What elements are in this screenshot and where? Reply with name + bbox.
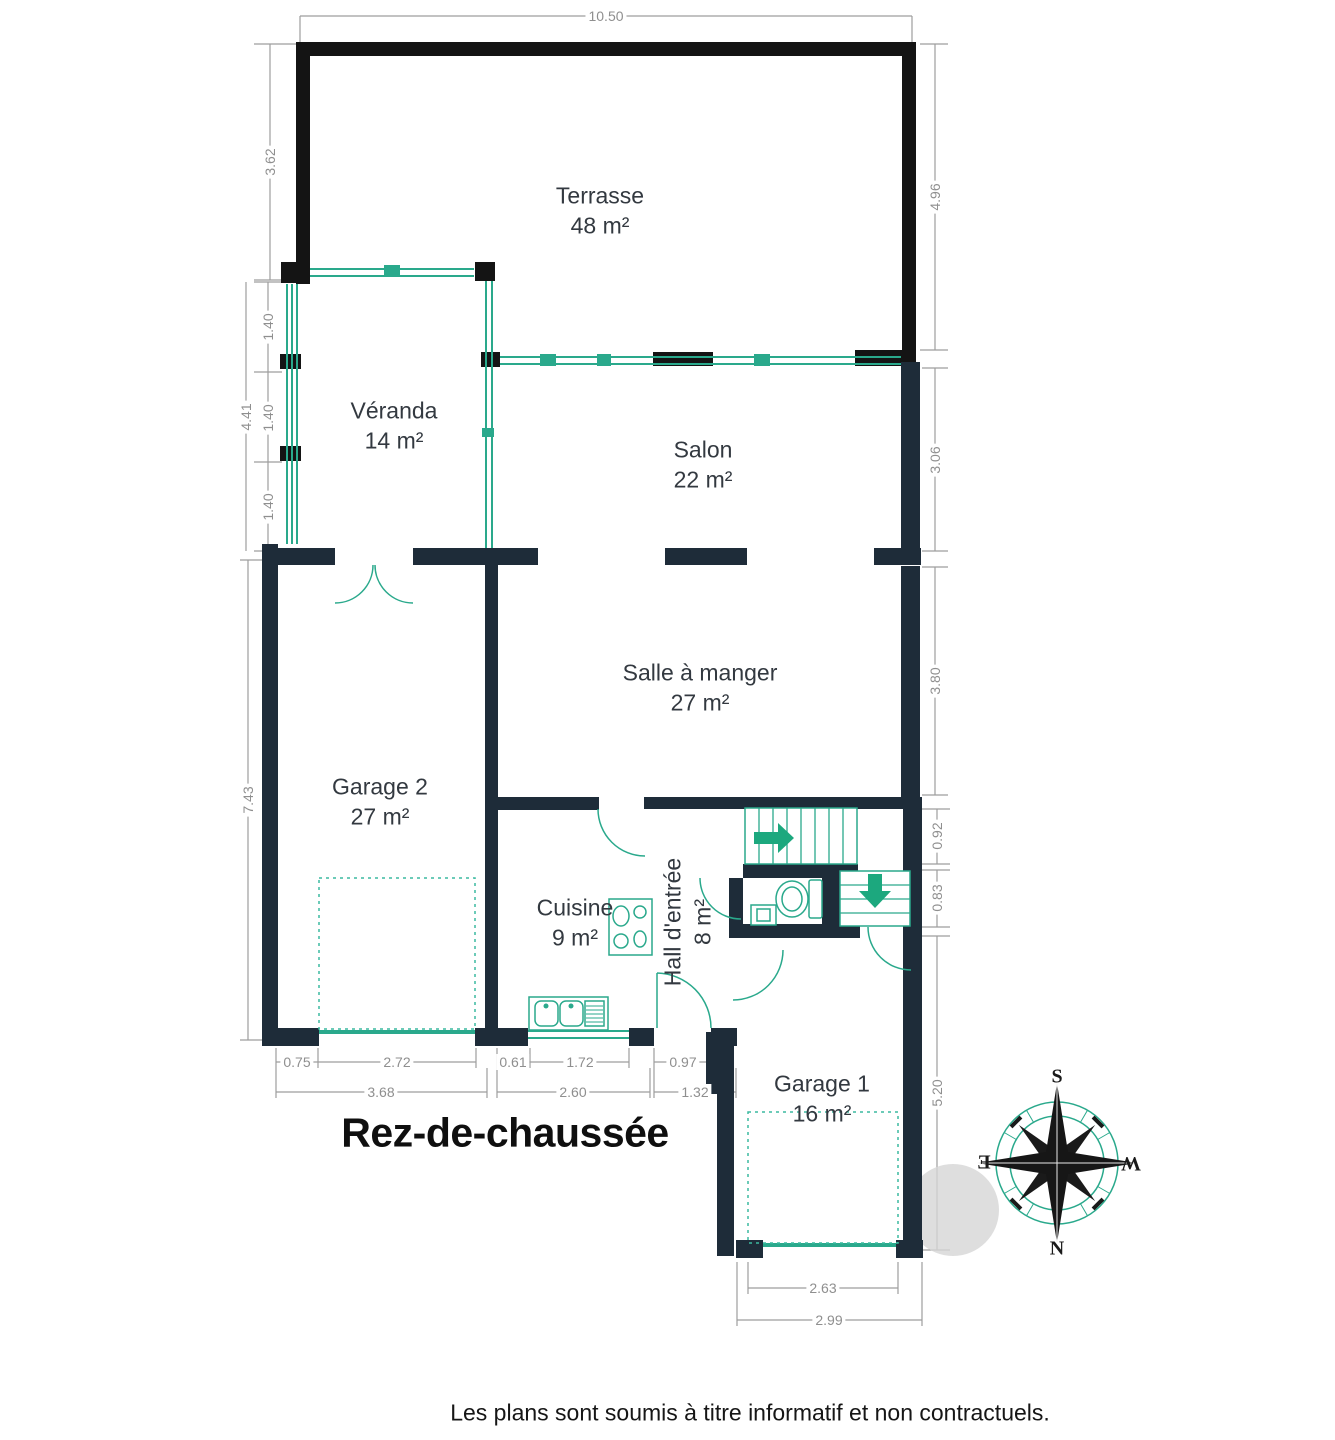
dim-top-width: 10.50 bbox=[585, 8, 626, 24]
dim-salon-right: 3.06 bbox=[927, 443, 943, 476]
garage2-door-sill bbox=[319, 1030, 475, 1034]
hall-passage-door bbox=[733, 950, 783, 1000]
room-label-terrasse: Terrasse 48 m² bbox=[556, 181, 644, 242]
room-label-salon: Salon 22 m² bbox=[674, 435, 733, 496]
toilet-icon bbox=[776, 880, 822, 918]
dim-cuisine-width: 2.60 bbox=[556, 1084, 589, 1100]
dim-garage2-left: 7.43 bbox=[240, 783, 256, 816]
dim-stair-right: 0.92 bbox=[929, 819, 945, 852]
stairs-down bbox=[840, 871, 910, 926]
dim-terrace-left: 3.62 bbox=[262, 145, 278, 178]
room-label-cuisine: Cuisine 9 m² bbox=[537, 893, 614, 954]
dim-garage1-width: 2.99 bbox=[812, 1312, 845, 1328]
dim-entry-door: 0.97 bbox=[666, 1054, 699, 1070]
dim-cuisine-window: 1.72 bbox=[563, 1054, 596, 1070]
window-mullions bbox=[384, 265, 770, 437]
room-label-garage2: Garage 2 27 m² bbox=[332, 772, 428, 833]
stairs-up bbox=[745, 808, 857, 864]
floor-plan: Terrasse 48 m² Véranda 14 m² Salon 22 m²… bbox=[0, 0, 1335, 1440]
stove-icon bbox=[609, 899, 652, 955]
page-title: Rez-de-chaussée bbox=[341, 1110, 668, 1157]
compass-north-label: N bbox=[1050, 1238, 1064, 1261]
wc-sink-icon bbox=[751, 905, 776, 925]
dim-terrace-right: 4.96 bbox=[927, 180, 943, 213]
dim-hall-width: 1.32 bbox=[678, 1084, 711, 1100]
compass-west-label: W bbox=[1121, 1152, 1141, 1175]
room-label-salle-a-manger: Salle à manger 27 m² bbox=[623, 658, 778, 719]
kitchen-sink-icon bbox=[529, 997, 608, 1030]
veranda-garage2-double-door bbox=[335, 565, 413, 603]
room-label-veranda: Véranda 14 m² bbox=[351, 396, 438, 457]
room-label-hall: Hall d'entrée 8 m² bbox=[658, 858, 719, 986]
dim-veranda-seg2: 1.40 bbox=[260, 401, 276, 434]
dim-garage1-door: 2.63 bbox=[806, 1280, 839, 1296]
dining-cuisine-door bbox=[598, 809, 645, 856]
dim-dining-right: 3.80 bbox=[927, 664, 943, 697]
dim-garage2-offset: 0.75 bbox=[280, 1054, 313, 1070]
room-label-garage1: Garage 1 16 m² bbox=[774, 1069, 870, 1130]
dim-garage2-door: 2.72 bbox=[380, 1054, 413, 1070]
dim-garage2-width: 3.68 bbox=[364, 1084, 397, 1100]
compass-south-label: S bbox=[1051, 1066, 1062, 1089]
disclaimer-text: Les plans sont soumis à titre informatif… bbox=[450, 1400, 1050, 1427]
floor-plan-drawing bbox=[0, 0, 1335, 1440]
dim-veranda-seg1: 1.40 bbox=[260, 310, 276, 343]
dim-veranda-total: 4.41 bbox=[238, 400, 254, 433]
compass-east-label: E bbox=[977, 1152, 990, 1175]
dim-wc-right: 0.83 bbox=[929, 881, 945, 914]
dim-veranda-seg3: 1.40 bbox=[260, 490, 276, 523]
dim-garage1-right: 5.20 bbox=[929, 1076, 945, 1109]
compass-rose bbox=[972, 1078, 1142, 1248]
dim-cuisine-offset: 0.61 bbox=[496, 1054, 529, 1070]
